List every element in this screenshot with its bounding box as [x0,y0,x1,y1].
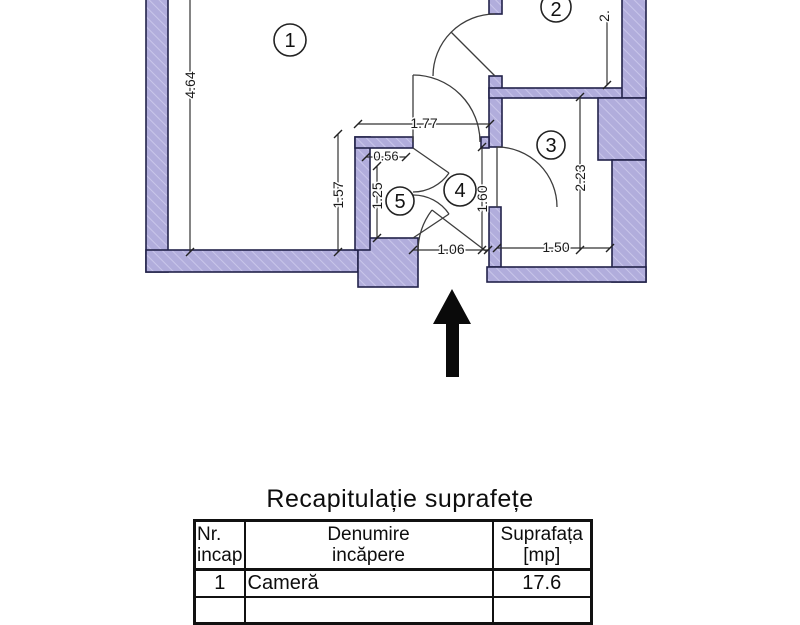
dimension-hall-right-height: 1.60 [474,143,490,254]
wall-right-column [598,98,646,160]
floor-plan-page: { "plan": { "wall_fill_color": "#b1addc"… [0,0,800,600]
svg-text:1.50: 1.50 [542,239,569,255]
table-header-row: Nr. incap. Denumire incăpere Suprafața [… [195,521,592,570]
wall-right-top [622,0,646,98]
svg-text:4: 4 [454,180,465,202]
svg-text:3: 3 [545,135,556,157]
room-label-2: 2 [541,0,571,22]
dimension-room5-inner-height: 1.25 [369,162,385,242]
svg-text:2: 2 [550,0,561,21]
wall-room5-top [355,137,413,148]
svg-text:4.64: 4.64 [182,71,198,98]
svg-text:0.56: 0.56 [373,149,398,164]
cell-room-nr: 1 [195,570,245,598]
door-room5-upper-leaf [413,148,449,192]
dimension-hall-top-width: 1.77 [354,115,494,131]
doors [413,14,557,252]
svg-text:1.06: 1.06 [437,241,464,257]
wall-mid-lower [489,207,501,267]
cell-room-area: 17.6 [493,570,592,598]
svg-text:1.57: 1.57 [330,181,346,208]
header-denumire: Denumire incăpere [245,521,493,570]
cell-room-name: Cameră [245,570,493,598]
room-labels: 1 2 3 4 5 [274,0,571,215]
svg-text:2.: 2. [596,10,612,22]
door-room1-room2 [433,14,495,76]
table-title: Recapitulație suprafețe [0,485,800,514]
dimension-room1-height: 4.64 [182,0,198,256]
wall-mid-upper [489,76,502,147]
header-nr: Nr. incap. [195,521,245,570]
dimension-room5-outer-height: 1.57 [330,130,346,256]
wall-room5-left [355,137,370,250]
dimension-room2-height-cropped: 2. [596,10,612,89]
room-label-4: 4 [444,174,476,206]
room-label-5: 5 [386,187,414,215]
wall-right-lower [612,160,646,282]
room-label-3: 3 [537,131,565,159]
door-room5-lower-leaf [413,195,449,238]
dimension-entrance-width: 1.06 [409,241,492,257]
dimension-room3-height: 2.23 [572,93,588,254]
wall-stub-room2-door [489,0,502,14]
wall-left-exterior [146,0,168,272]
wall-bottom-room3 [487,267,646,282]
dimensions: 4.64 1.77 0.56 1.57 1.25 [182,0,614,257]
walls [146,0,646,287]
entrance-arrow-icon [433,289,471,377]
svg-text:1.25: 1.25 [369,182,385,209]
table-row: 1 Cameră 17.6 [195,570,592,598]
svg-text:1.77: 1.77 [410,115,437,131]
header-suprafata: Suprafața [mp] [493,521,592,570]
wall-bottom-room1 [146,250,358,272]
svg-text:1: 1 [284,30,295,52]
table-row-clipped [195,597,592,624]
summary-table: Nr. incap. Denumire incăpere Suprafața [… [193,519,593,625]
svg-text:5: 5 [394,191,405,213]
svg-text:2.23: 2.23 [572,164,588,191]
door-room1-hallway [413,75,480,142]
dimension-room3-width: 1.50 [493,239,614,255]
room-label-1: 1 [274,24,306,56]
